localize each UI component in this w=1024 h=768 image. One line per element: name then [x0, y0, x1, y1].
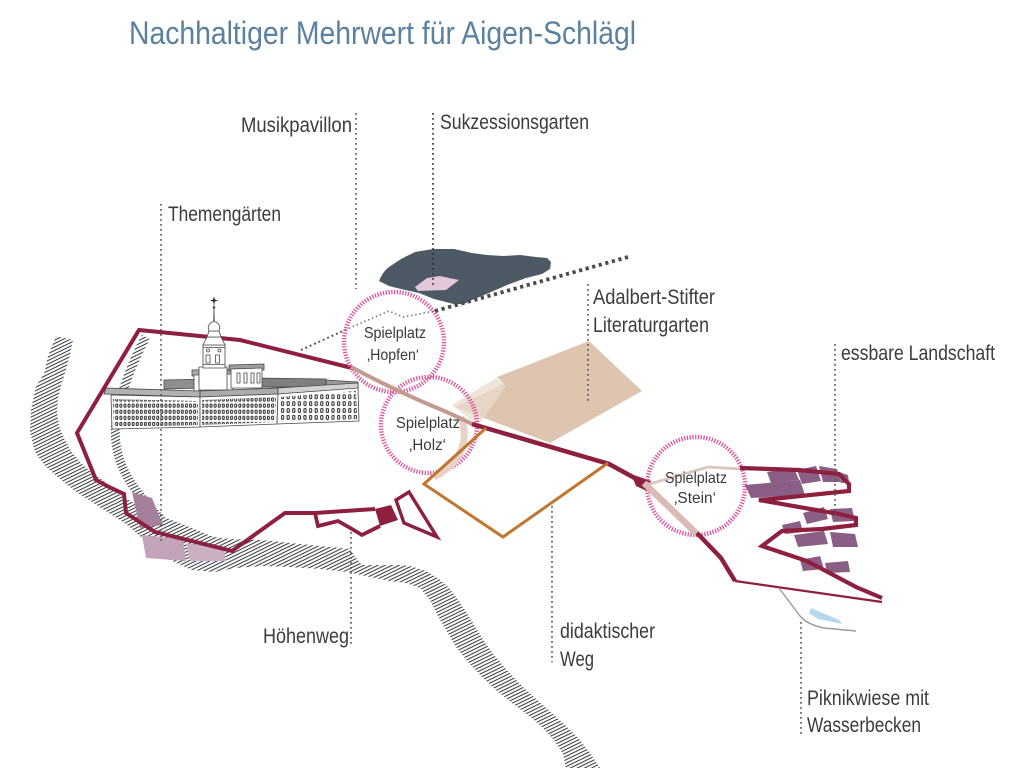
- svg-text:‚Holz‘: ‚Holz‘: [409, 437, 446, 454]
- svg-text:Spielplatz: Spielplatz: [364, 325, 426, 342]
- svg-text:Nachhaltiger Mehrwert für Aige: Nachhaltiger Mehrwert für Aigen-Schlägl: [129, 15, 636, 51]
- svg-text:Adalbert-Stifter: Adalbert-Stifter: [593, 286, 715, 309]
- svg-text:Höhenweg: Höhenweg: [263, 625, 349, 648]
- svg-text:Wasserbecken: Wasserbecken: [807, 714, 921, 737]
- svg-text:‚Stein‘: ‚Stein‘: [674, 490, 716, 507]
- svg-text:‚Hopfen‘: ‚Hopfen‘: [367, 347, 419, 364]
- svg-text:Literaturgarten: Literaturgarten: [593, 314, 709, 337]
- svg-text:didaktischer: didaktischer: [560, 620, 655, 643]
- svg-text:essbare Landschaft: essbare Landschaft: [841, 342, 995, 365]
- svg-text:Themengärten: Themengärten: [168, 203, 281, 226]
- svg-text:Spielplatz: Spielplatz: [665, 470, 727, 487]
- svg-text:Weg: Weg: [560, 648, 594, 671]
- svg-text:Musikpavillon: Musikpavillon: [241, 114, 352, 137]
- svg-text:Sukzessionsgarten: Sukzessionsgarten: [440, 111, 589, 134]
- svg-text:Piknikwiese mit: Piknikwiese mit: [807, 687, 929, 710]
- svg-text:Spielplatz: Spielplatz: [396, 415, 460, 432]
